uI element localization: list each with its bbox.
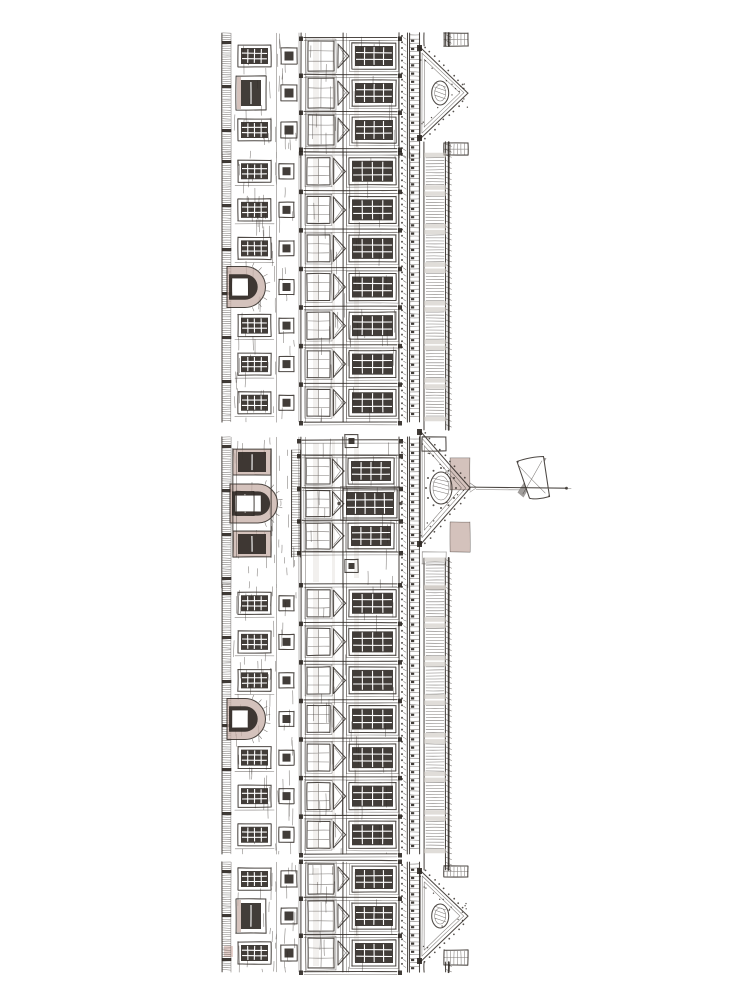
page xyxy=(0,0,750,1000)
palace-sketch-svg xyxy=(0,0,750,1000)
pavilion-bottom xyxy=(236,860,468,976)
pavilion-top xyxy=(236,33,468,155)
union-jack-flag-group xyxy=(470,457,571,499)
centre-pavilion xyxy=(230,429,470,590)
